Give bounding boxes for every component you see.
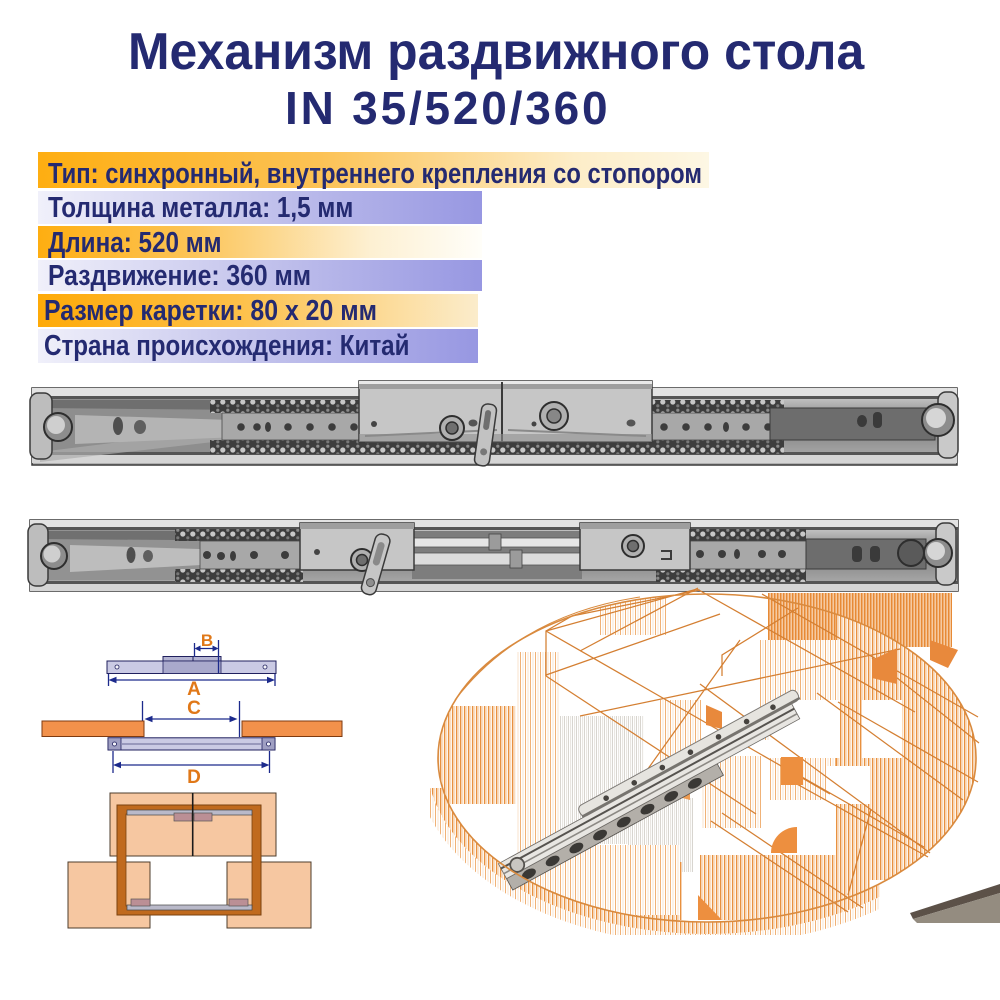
svg-text:C: C	[187, 698, 201, 719]
svg-text:B: B	[201, 631, 213, 650]
svg-text:D: D	[187, 767, 201, 788]
svg-text:A: A	[187, 679, 201, 700]
